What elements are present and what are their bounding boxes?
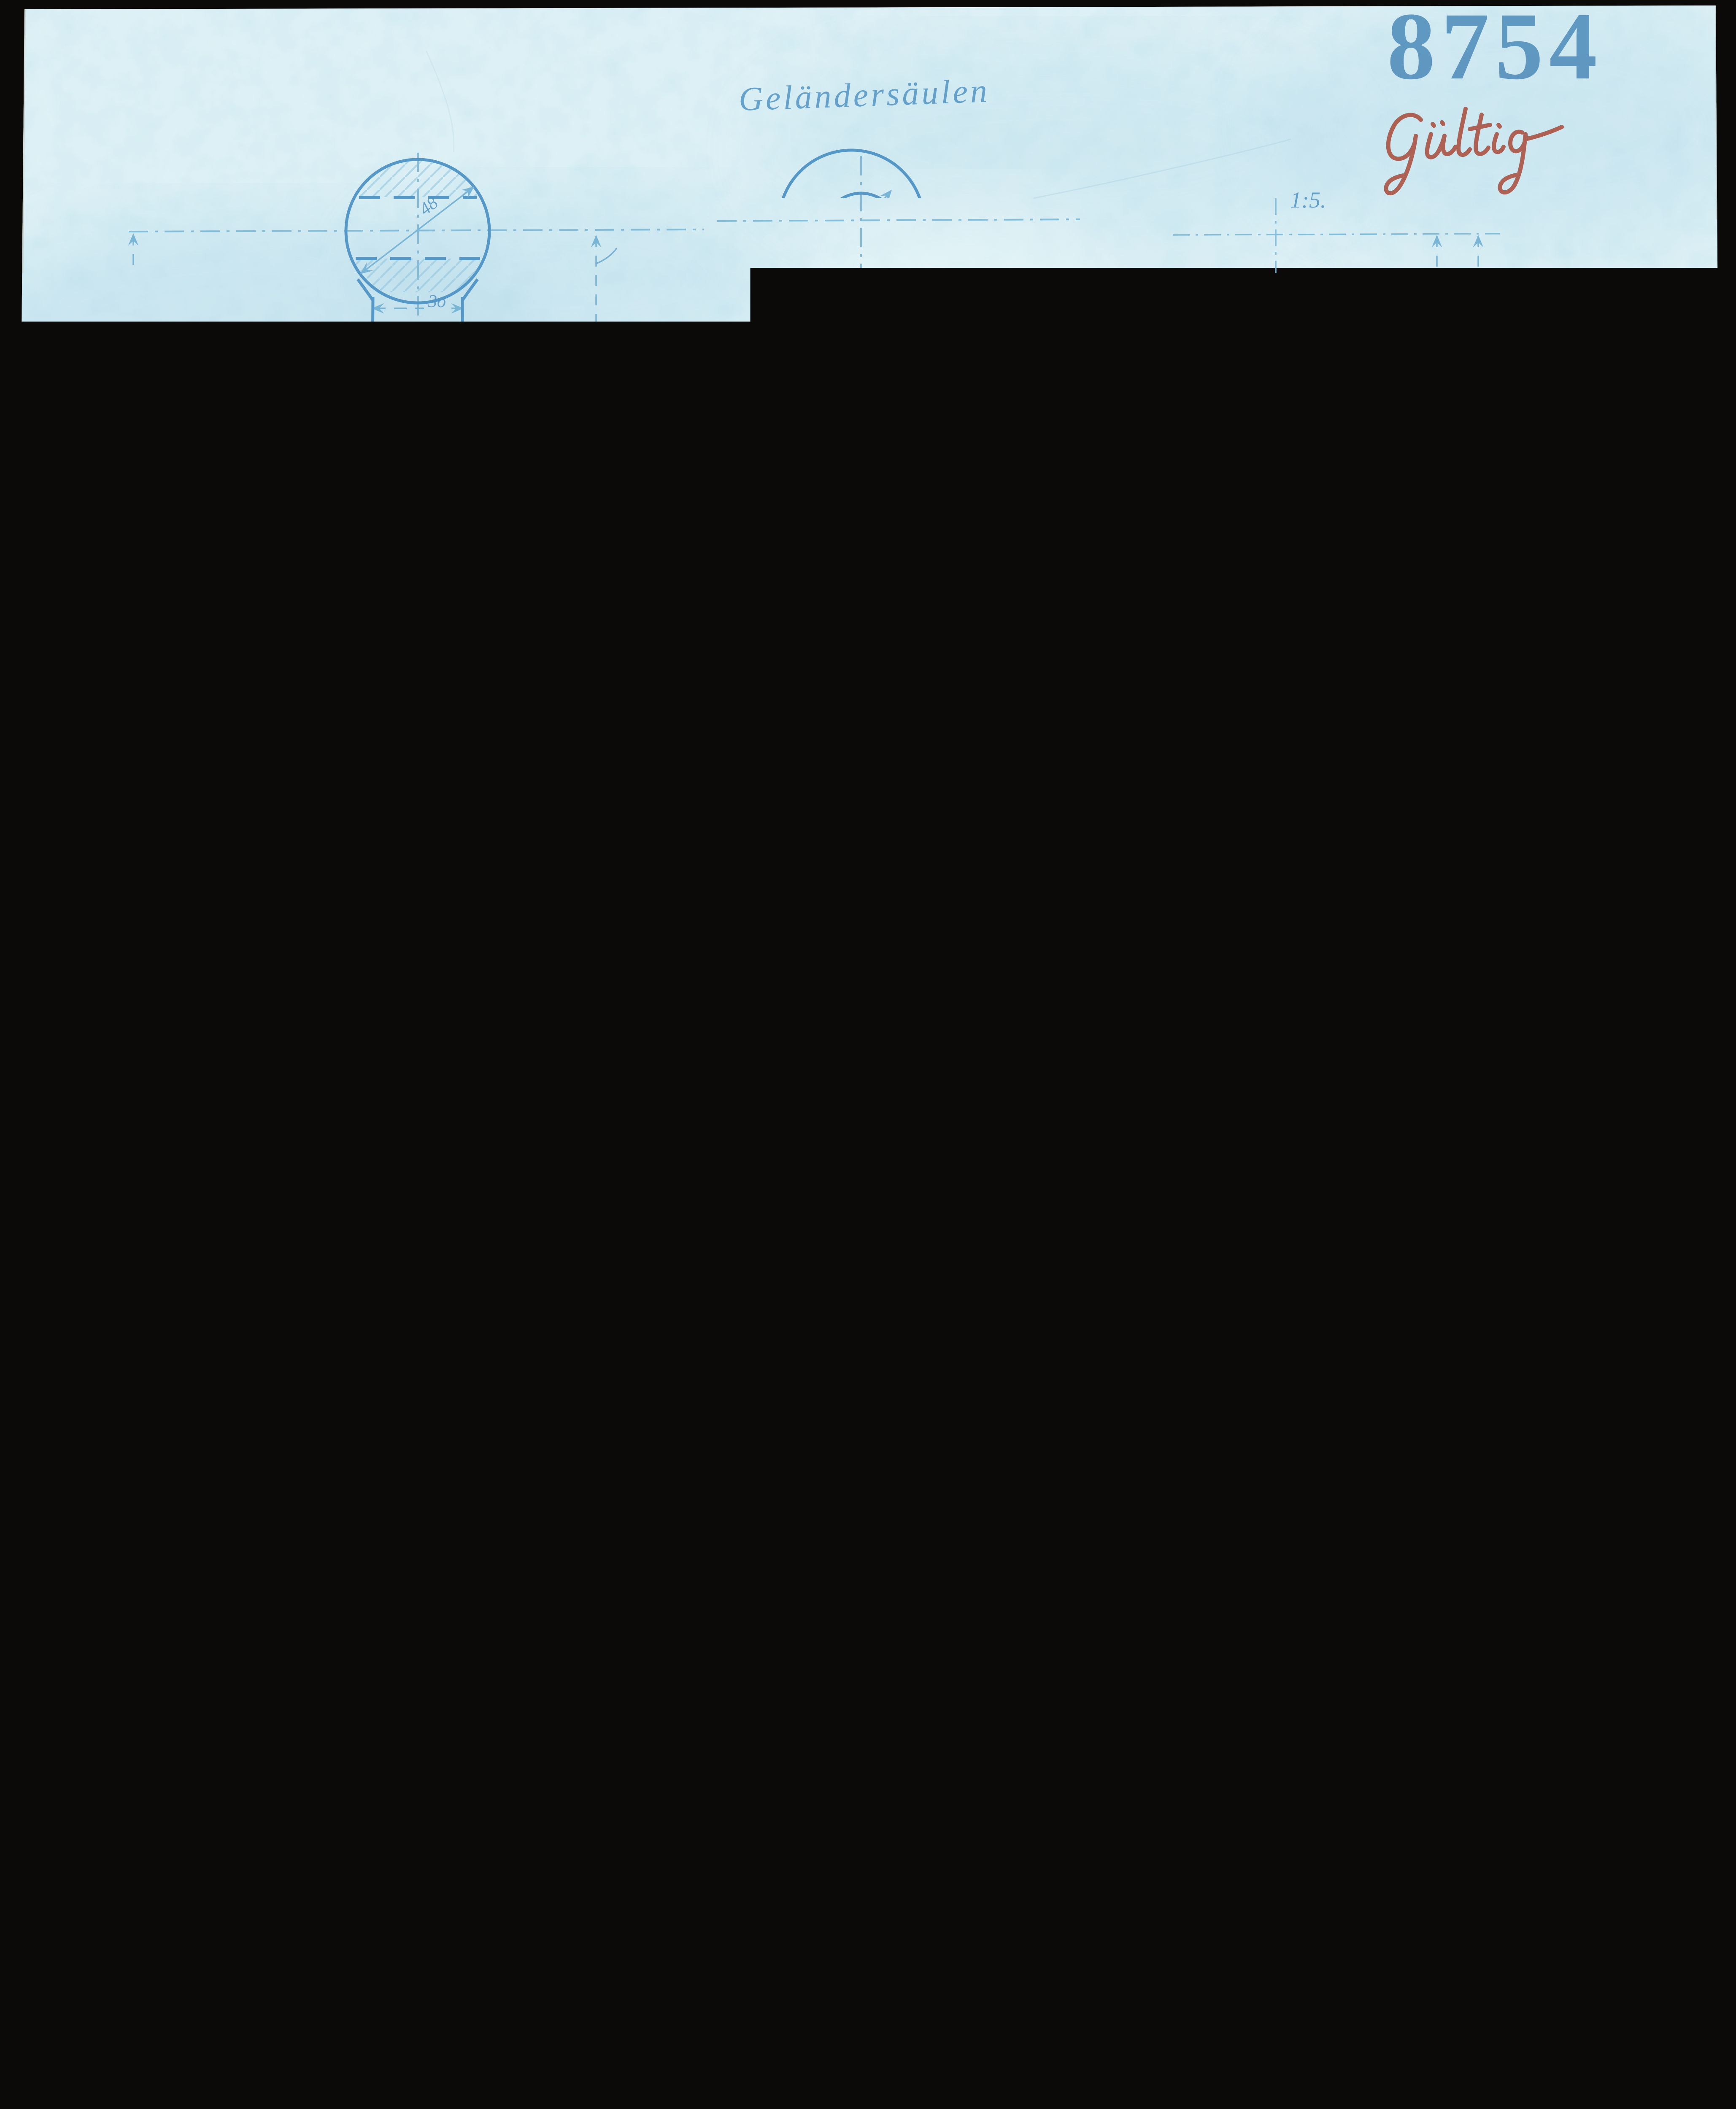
svg-text:25: 25 bbox=[755, 1485, 772, 1500]
svg-text:3: 3 bbox=[790, 1266, 802, 1272]
svg-text:3o: 3o bbox=[428, 292, 446, 311]
svg-text:8o: 8o bbox=[875, 1588, 889, 1601]
svg-text:49: 49 bbox=[420, 1634, 440, 1656]
svg-text:9: 9 bbox=[108, 828, 130, 837]
svg-text:55: 55 bbox=[763, 1527, 780, 1542]
svg-text:3o: 3o bbox=[424, 1700, 441, 1719]
svg-text:9.: 9. bbox=[1452, 484, 1475, 500]
svg-text:3: 3 bbox=[524, 933, 530, 946]
svg-text:49: 49 bbox=[435, 935, 455, 957]
svg-text:1:5.: 1:5. bbox=[1290, 187, 1326, 213]
svg-text:15: 15 bbox=[279, 1667, 291, 1680]
svg-text:45: 45 bbox=[177, 1615, 196, 1633]
svg-text:9o: 9o bbox=[440, 2013, 458, 2034]
svg-text:o: o bbox=[524, 918, 530, 931]
svg-text:a 49: a 49 bbox=[855, 1040, 889, 1064]
svg-text:35o: 35o bbox=[572, 771, 593, 800]
svg-text:8754: 8754 bbox=[1387, 0, 1603, 100]
svg-text:36: 36 bbox=[426, 857, 445, 877]
svg-text:4o: 4o bbox=[508, 959, 529, 978]
svg-text:11: 11 bbox=[168, 1711, 185, 1725]
svg-text:35o: 35o bbox=[1414, 305, 1434, 334]
svg-text:12o: 12o bbox=[371, 1760, 399, 1781]
svg-text:45: 45 bbox=[386, 1111, 405, 1133]
